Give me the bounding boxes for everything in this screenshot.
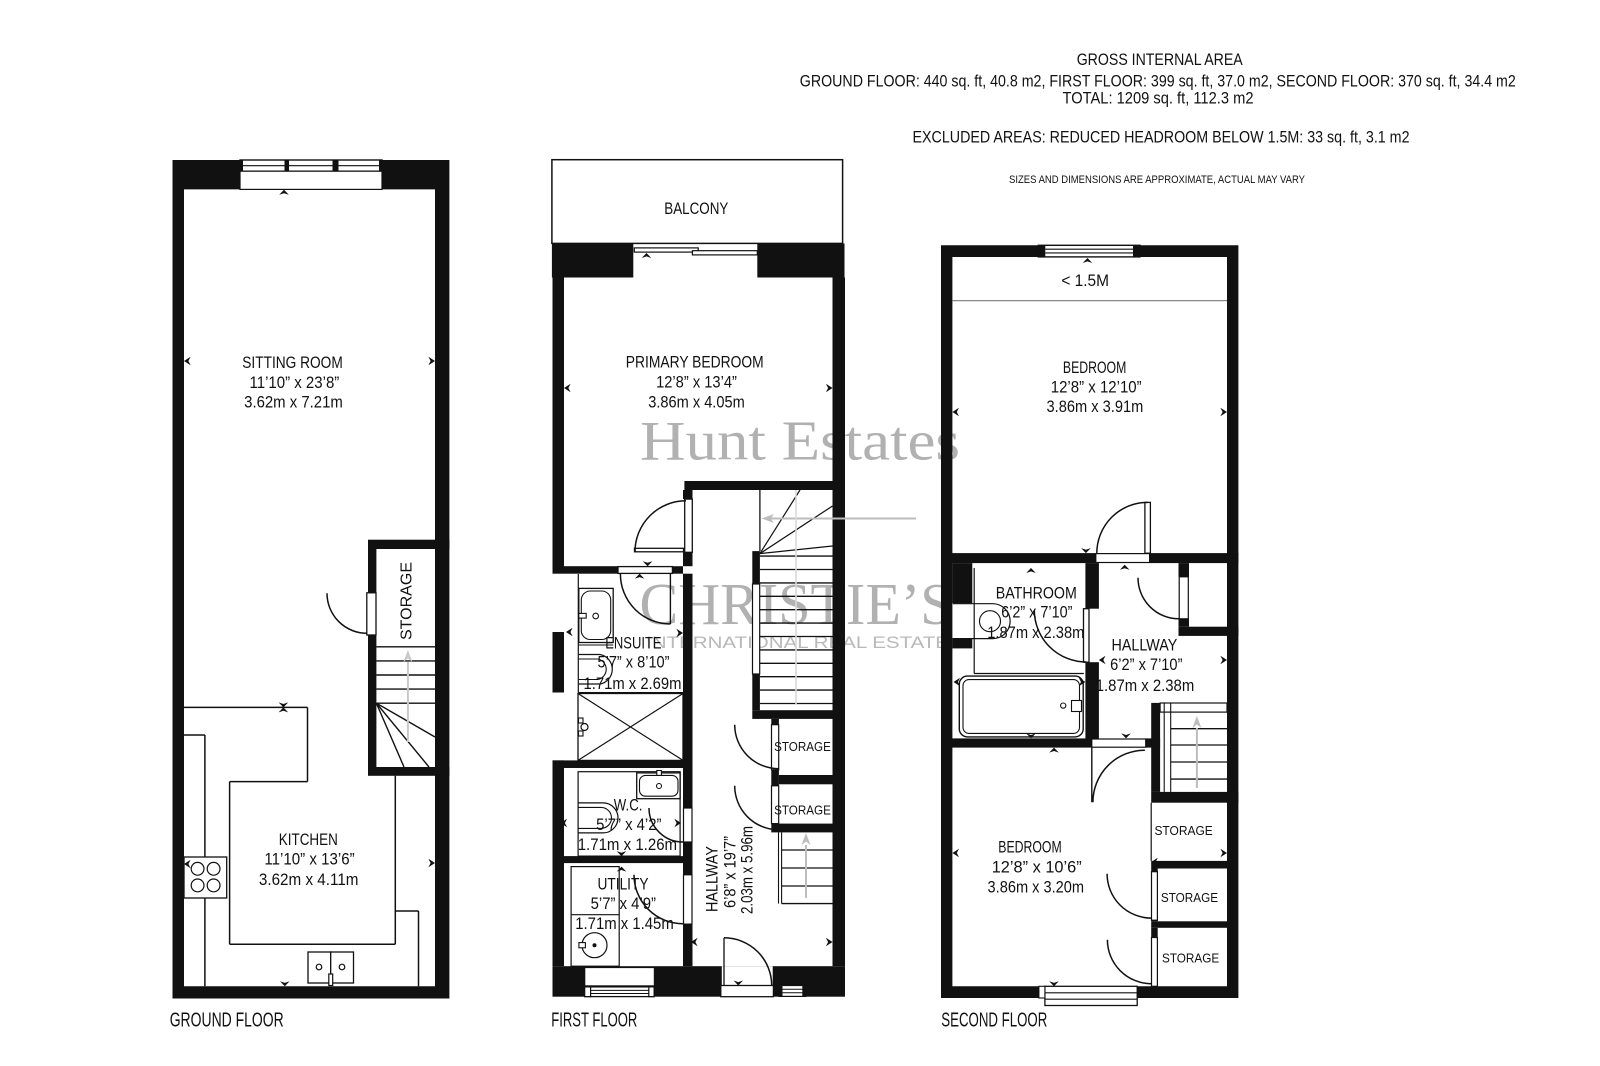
svg-text:5’7” x 8’10”: 5’7” x 8’10” <box>598 653 670 672</box>
svg-text:HALLWAY: HALLWAY <box>1112 635 1178 654</box>
svg-text:STORAGE: STORAGE <box>399 562 416 640</box>
svg-text:TOTAL: 1209 sq. ft, 112.3 m2: TOTAL: 1209 sq. ft, 112.3 m2 <box>1063 89 1254 108</box>
svg-text:1.87m x 2.38m: 1.87m x 2.38m <box>987 623 1084 642</box>
svg-text:GROUND FLOOR: GROUND FLOOR <box>170 1010 284 1032</box>
svg-text:SECOND FLOOR: SECOND FLOOR <box>941 1010 1047 1032</box>
svg-text:GROSS INTERNAL AREA: GROSS INTERNAL AREA <box>1077 50 1244 69</box>
svg-text:3.86m x 3.20m: 3.86m x 3.20m <box>988 877 1085 896</box>
svg-text:PRIMARY BEDROOM: PRIMARY BEDROOM <box>626 353 764 372</box>
svg-text:1.71m x 1.26m: 1.71m x 1.26m <box>578 835 677 854</box>
svg-text:ENSUITE: ENSUITE <box>605 634 661 653</box>
svg-text:3.62m x 7.21m: 3.62m x 7.21m <box>244 393 343 412</box>
svg-text:11’10” x 23’8”: 11’10” x 23’8” <box>250 373 340 392</box>
svg-text:1.87m x 2.38m: 1.87m x 2.38m <box>1096 676 1195 695</box>
svg-text:< 1.5M: < 1.5M <box>1061 271 1109 290</box>
svg-text:BEDROOM: BEDROOM <box>1063 358 1126 377</box>
svg-text:W.C.: W.C. <box>614 795 643 814</box>
svg-text:12’8” x 13’4”: 12’8” x 13’4” <box>656 373 737 392</box>
svg-text:5’7” x 4’2”: 5’7” x 4’2” <box>596 815 662 834</box>
svg-text:3.86m x 4.05m: 3.86m x 4.05m <box>648 393 745 412</box>
svg-text:1.71m x 1.45m: 1.71m x 1.45m <box>575 914 674 933</box>
svg-text:Hunt Estates: Hunt Estates <box>640 411 960 473</box>
svg-text:3.62m x 4.11m: 3.62m x 4.11m <box>259 870 359 889</box>
svg-text:2.03m x 5.96m: 2.03m x 5.96m <box>738 826 757 914</box>
svg-text:SITTING ROOM: SITTING ROOM <box>242 353 343 372</box>
svg-text:12’8” x 12’10”: 12’8” x 12’10” <box>1051 377 1142 396</box>
svg-text:GROUND FLOOR: 440 sq. ft, 40.8: GROUND FLOOR: 440 sq. ft, 40.8 m2, FIRST… <box>800 71 1516 90</box>
svg-text:STORAGE: STORAGE <box>774 802 831 817</box>
svg-text:STORAGE: STORAGE <box>1161 890 1218 905</box>
svg-text:6’2” x 7’10”: 6’2” x 7’10” <box>1110 655 1183 674</box>
svg-text:EXCLUDED AREAS: REDUCED HEADRO: EXCLUDED AREAS: REDUCED HEADROOM BELOW 1… <box>913 128 1410 147</box>
svg-text:STORAGE: STORAGE <box>774 739 831 754</box>
svg-text:UTILITY: UTILITY <box>598 874 649 893</box>
svg-text:FIRST FLOOR: FIRST FLOOR <box>551 1010 637 1032</box>
svg-text:BATHROOM: BATHROOM <box>996 583 1077 602</box>
svg-text:6’2” x 7’10”: 6’2” x 7’10” <box>1001 603 1072 622</box>
svg-text:HALLWAY: HALLWAY <box>703 846 722 912</box>
svg-text:KITCHEN: KITCHEN <box>279 830 338 849</box>
svg-text:1.71m x 2.69m: 1.71m x 2.69m <box>584 674 682 693</box>
svg-text:3.86m x 3.91m: 3.86m x 3.91m <box>1047 397 1144 416</box>
svg-text:BEDROOM: BEDROOM <box>998 838 1061 857</box>
svg-text:STORAGE: STORAGE <box>1154 823 1213 838</box>
svg-text:5’7” x 4’9”: 5’7” x 4’9” <box>591 894 657 913</box>
svg-text:11’10” x 13’6”: 11’10” x 13’6” <box>264 850 355 869</box>
svg-text:STORAGE: STORAGE <box>1162 950 1219 965</box>
svg-text:12’8” x 10’6”: 12’8” x 10’6” <box>992 858 1082 877</box>
svg-text:SIZES AND DIMENSIONS ARE APPRO: SIZES AND DIMENSIONS ARE APPROXIMATE, AC… <box>1009 174 1305 186</box>
svg-text:BALCONY: BALCONY <box>664 199 728 218</box>
